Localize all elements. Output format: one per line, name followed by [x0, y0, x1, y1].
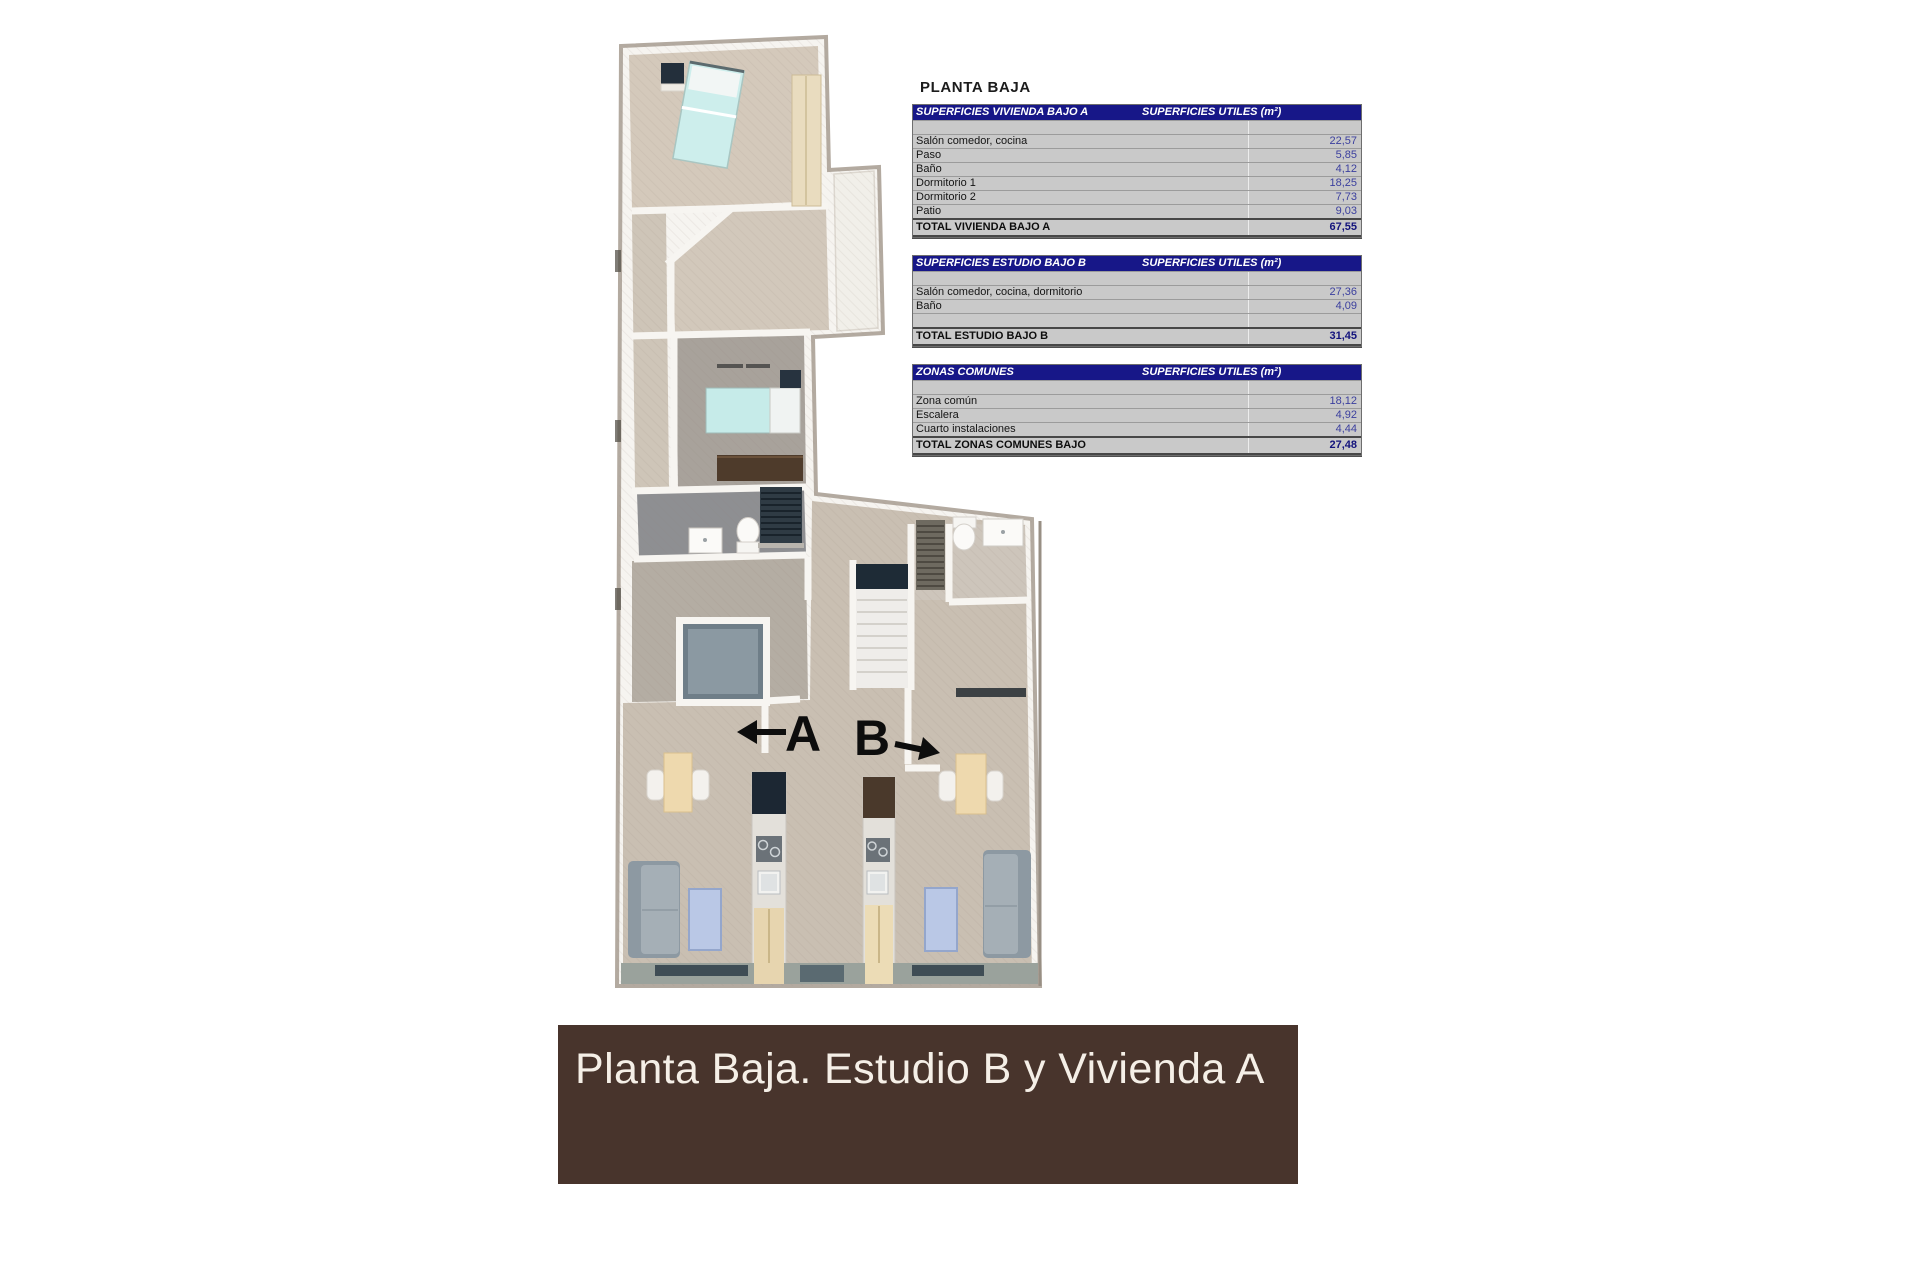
stairs-dark — [758, 487, 804, 548]
staircase — [856, 564, 908, 688]
row-value: 22,57 — [1248, 135, 1361, 148]
sink — [689, 528, 722, 553]
bottom-wall — [621, 963, 1038, 984]
rug-right — [925, 888, 957, 951]
kitchen-island-a — [752, 772, 786, 968]
sofa-left — [628, 861, 680, 958]
kitchen-island-b — [863, 777, 895, 968]
row-value: 4,44 — [1248, 423, 1361, 436]
unit-a-label: A — [785, 706, 821, 762]
toilet — [737, 518, 759, 554]
sink-b — [983, 519, 1023, 546]
radiator-stairs — [916, 520, 945, 590]
dresser — [717, 455, 803, 481]
row-value: 18,25 — [1248, 177, 1361, 190]
row-value: 7,73 — [1248, 191, 1361, 204]
caption-text: Planta Baja. Estudio B y Vivienda A — [558, 1025, 1298, 1094]
row-value: 27,36 — [1248, 286, 1361, 299]
sofa-right — [983, 850, 1031, 958]
patio-court — [676, 617, 770, 706]
total-value: 67,55 — [1248, 220, 1361, 235]
page: PLANTA BAJA SUPERFICIES VIVIENDA BAJO AS… — [0, 0, 1920, 1280]
row-value — [1248, 314, 1361, 327]
row-value — [1248, 272, 1361, 285]
floorplan-svg: A B — [556, 24, 1116, 990]
total-value: 27,48 — [1248, 438, 1361, 453]
table-units-header: SUPERFICIES UTILES (m²) — [1142, 365, 1281, 380]
row-value: 9,03 — [1248, 205, 1361, 218]
row-value — [1248, 121, 1361, 134]
wardrobe — [792, 75, 821, 206]
total-value: 31,45 — [1248, 329, 1361, 344]
headboard-nightstand — [661, 63, 686, 91]
row-value: 4,92 — [1248, 409, 1361, 422]
table-units-header: SUPERFICIES UTILES (m²) — [1142, 256, 1281, 271]
unit-b-label: B — [854, 710, 890, 766]
rug-left — [689, 889, 721, 950]
table-units-header: SUPERFICIES UTILES (m²) — [1142, 105, 1281, 120]
row-value — [1248, 381, 1361, 394]
row-value: 18,12 — [1248, 395, 1361, 408]
shelf — [956, 688, 1026, 697]
row-value: 4,09 — [1248, 300, 1361, 313]
caption-banner: Planta Baja. Estudio B y Vivienda A — [558, 1025, 1298, 1184]
row-value: 5,85 — [1248, 149, 1361, 162]
toilet-b — [953, 517, 976, 550]
row-value: 4,12 — [1248, 163, 1361, 176]
